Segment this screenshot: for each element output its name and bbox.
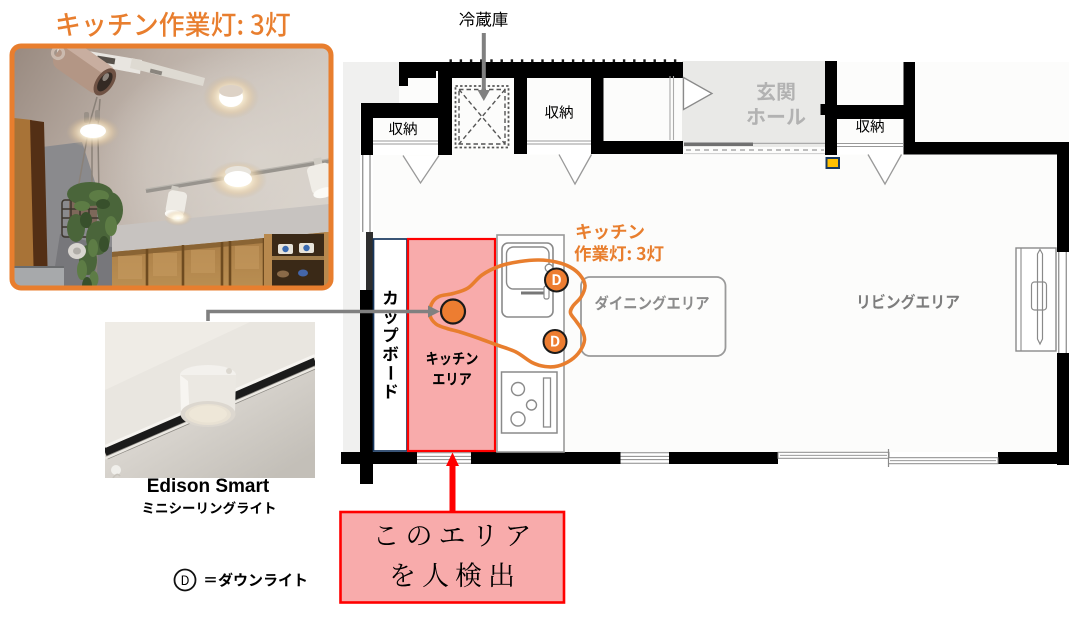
svg-text:Edison Smart: Edison Smart — [147, 476, 270, 497]
